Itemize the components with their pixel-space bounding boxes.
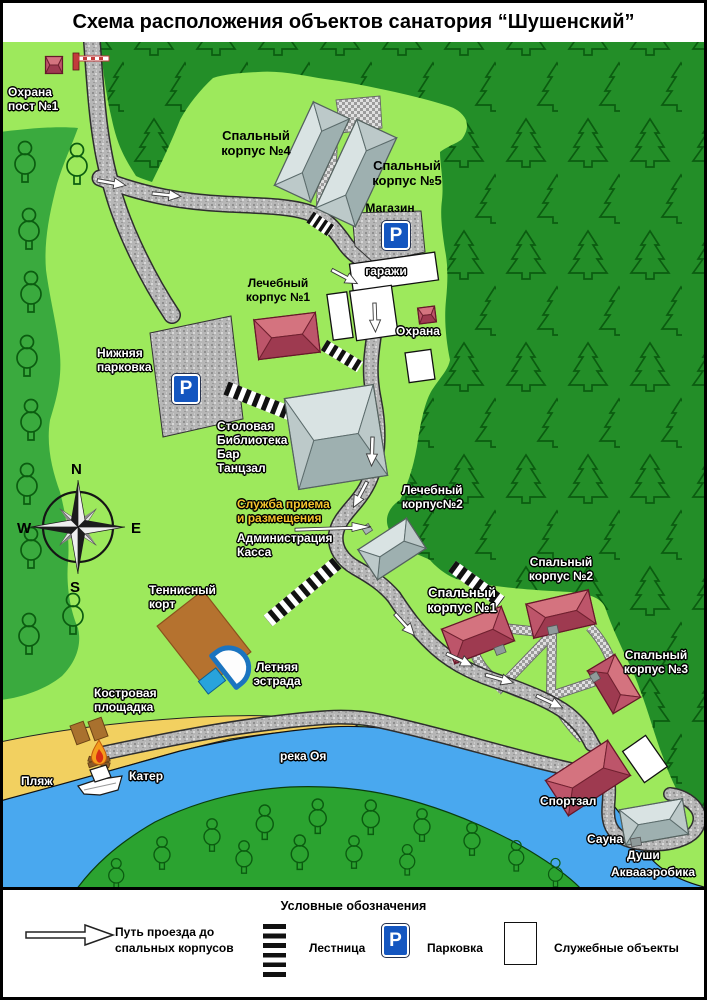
legend-route-label: Путь проезда до спальных корпусов bbox=[115, 924, 234, 956]
label-boat: Катер bbox=[129, 769, 163, 783]
label-garages: гаражи bbox=[348, 264, 424, 278]
compass-e: E bbox=[131, 520, 141, 537]
label-showers: Души bbox=[627, 848, 660, 862]
label-administration: Администрация Касса bbox=[237, 531, 332, 559]
label-sleeping-5: Спальный корпус №5 bbox=[362, 158, 452, 189]
label-reception-service: Служба приема и размещения bbox=[237, 497, 330, 525]
label-security: Охрана bbox=[396, 324, 440, 338]
map-area: Охрана пост №1 Спальный корпус №4 Спальн… bbox=[3, 42, 704, 890]
label-campfire: Костровая площадка bbox=[94, 686, 157, 714]
building-service-3 bbox=[405, 349, 435, 382]
route-arrow-icon bbox=[23, 920, 118, 950]
title-bar: Схема расположения объектов санатория “Ш… bbox=[3, 3, 704, 42]
label-lower-parking: Нижняя парковка bbox=[97, 346, 152, 374]
legend-parking-label: Парковка bbox=[427, 940, 483, 956]
label-gym: Спортзал bbox=[540, 794, 596, 808]
label-beach: Пляж bbox=[21, 774, 53, 788]
label-shop: Магазин bbox=[352, 201, 428, 215]
compass-w: W bbox=[17, 520, 31, 537]
label-summer-stage: Летняя эстрада bbox=[227, 660, 327, 688]
parking-sign-lower: P bbox=[172, 374, 200, 404]
label-river: река Оя bbox=[280, 749, 326, 763]
parking-letter: P bbox=[390, 225, 403, 247]
legend-service-label: Служебные объекты bbox=[554, 940, 679, 956]
label-sleeping-2: Спальный корпус №2 bbox=[511, 555, 611, 583]
legend-stairs-label: Лестница bbox=[309, 940, 365, 956]
label-sleeping-4: Спальный корпус №4 bbox=[211, 128, 301, 159]
map-poster: Схема расположения объектов санатория “Ш… bbox=[0, 0, 707, 1000]
compass-n: N bbox=[71, 461, 82, 478]
label-medical-2: Лечебный корпус№2 bbox=[402, 483, 463, 511]
label-sauna: Сауна bbox=[587, 832, 623, 846]
building-security bbox=[418, 306, 437, 324]
parking-letter: P bbox=[389, 930, 402, 952]
service-object-icon bbox=[504, 922, 537, 965]
label-tennis-court: Теннисный корт bbox=[149, 583, 216, 611]
label-dining-hall: Столовая Библиотека Бар Танцзал bbox=[217, 419, 287, 476]
parking-sign-shop: P bbox=[382, 221, 410, 250]
stairs-icon bbox=[263, 924, 286, 977]
legend: Условные обозначения Путь проезда до спа… bbox=[3, 890, 704, 996]
building-medical-1 bbox=[254, 312, 320, 359]
label-security-post-1: Охрана пост №1 bbox=[8, 85, 58, 113]
sauna-porch bbox=[630, 837, 641, 847]
label-aqua-aerobics: Аквааэробика bbox=[611, 865, 695, 879]
compass-s: S bbox=[70, 579, 80, 596]
legend-title: Условные обозначения bbox=[3, 899, 704, 913]
label-sleeping-1: Спальный корпус №1 bbox=[412, 585, 512, 616]
building-security-post bbox=[46, 57, 63, 74]
label-medical-1: Лечебный корпус №1 bbox=[233, 276, 323, 304]
parking-sign-icon: P bbox=[382, 924, 409, 957]
page-title: Схема расположения объектов санатория “Ш… bbox=[72, 11, 634, 34]
map-graphic bbox=[3, 42, 704, 887]
label-sleeping-3: Спальный корпус №3 bbox=[608, 648, 704, 676]
parking-letter: P bbox=[180, 378, 193, 400]
